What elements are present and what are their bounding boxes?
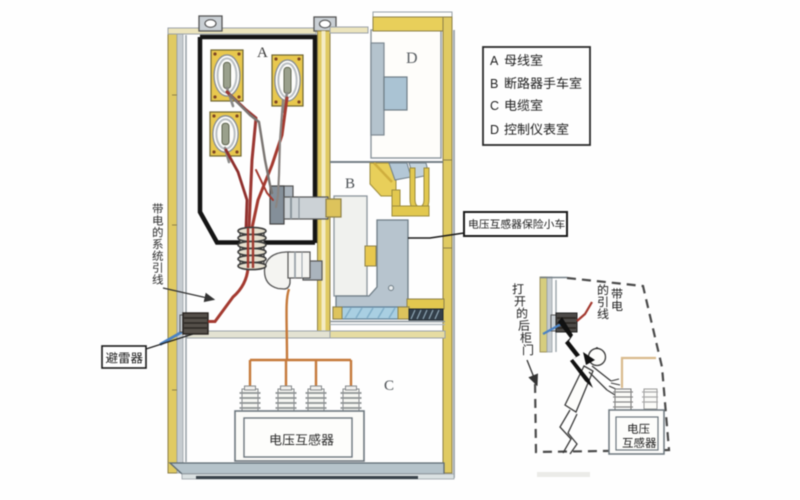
svg-text:C: C — [490, 99, 499, 113]
svg-text:D: D — [490, 123, 499, 137]
svg-text:B: B — [345, 176, 355, 192]
svg-text:C: C — [384, 378, 394, 394]
svg-text:B: B — [490, 77, 498, 91]
svg-text:A: A — [257, 45, 268, 61]
svg-text:D: D — [406, 50, 418, 67]
svg-text:A: A — [490, 54, 499, 68]
